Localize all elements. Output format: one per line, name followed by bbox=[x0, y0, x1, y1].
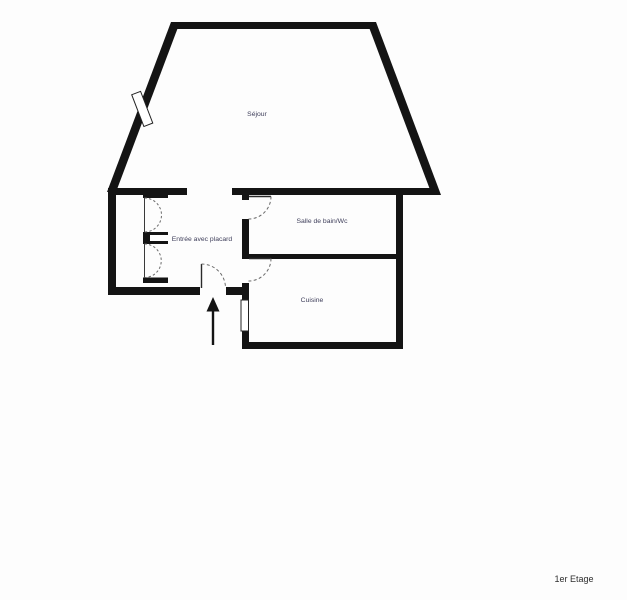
closet-stub-top bbox=[143, 193, 168, 198]
room-label-entree: Entrée avec placard bbox=[172, 236, 233, 243]
wall-sejour-top bbox=[171, 22, 376, 29]
wall-cuisine-bottom bbox=[242, 342, 403, 349]
closet-placard bbox=[143, 193, 168, 283]
wall-sejour-right-slant bbox=[367, 22, 441, 195]
wall-lower-section-top bbox=[232, 188, 438, 195]
cuisine-window bbox=[241, 300, 249, 331]
floor-plan: Séjour Entrée avec placard Salle de bain… bbox=[0, 0, 627, 600]
cuisine-door-arc bbox=[249, 259, 272, 282]
closet-stub-middle bbox=[143, 232, 168, 244]
floor-plan-svg: Séjour Entrée avec placard Salle de bain… bbox=[0, 0, 627, 600]
wall-divider-below-door bbox=[242, 283, 249, 301]
room-label-sejour: Séjour bbox=[247, 111, 267, 118]
floor-label: 1er Etage bbox=[554, 574, 593, 584]
entrance-door-arc bbox=[202, 264, 226, 288]
windows bbox=[132, 91, 249, 331]
wall-right bbox=[396, 188, 403, 349]
closet-door-arc-upper bbox=[145, 198, 162, 232]
room-label-cuisine: Cuisine bbox=[301, 297, 324, 304]
wall-entree-bottom-left bbox=[108, 287, 200, 295]
closet-stub-bottom bbox=[143, 278, 168, 284]
walls bbox=[107, 22, 441, 349]
room-label-salle-de-bain: Salle de bain/Wc bbox=[296, 218, 348, 225]
entrance-arrow-icon bbox=[207, 297, 220, 345]
salle-de-bain-door-arc bbox=[249, 197, 272, 220]
entrance-arrow-head bbox=[207, 297, 220, 312]
wall-divider-stub-top bbox=[242, 188, 249, 200]
wall-divider-middle bbox=[242, 219, 249, 259]
wall-entree-left bbox=[108, 188, 116, 295]
closet-door-arc-lower bbox=[145, 244, 162, 278]
